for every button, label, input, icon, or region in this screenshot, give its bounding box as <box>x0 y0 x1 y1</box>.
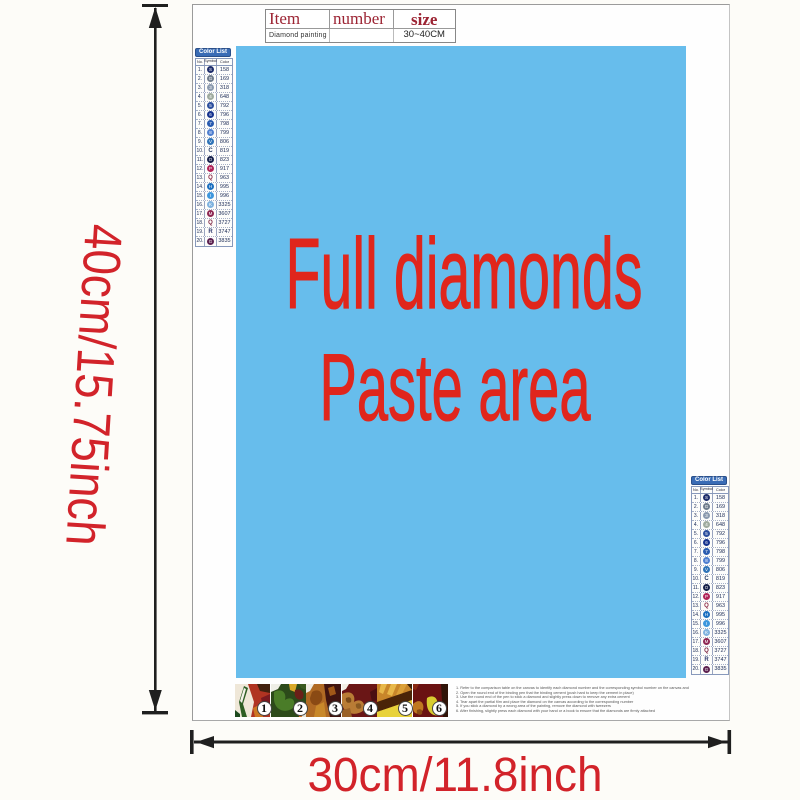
svg-text:Full diamonds: Full diamonds <box>286 218 643 330</box>
svg-text:30cm/11.8inch: 30cm/11.8inch <box>308 749 603 800</box>
svg-text:40cm/15.75inch: 40cm/15.75inch <box>54 222 133 547</box>
svg-text:Paste area: Paste area <box>320 335 591 441</box>
